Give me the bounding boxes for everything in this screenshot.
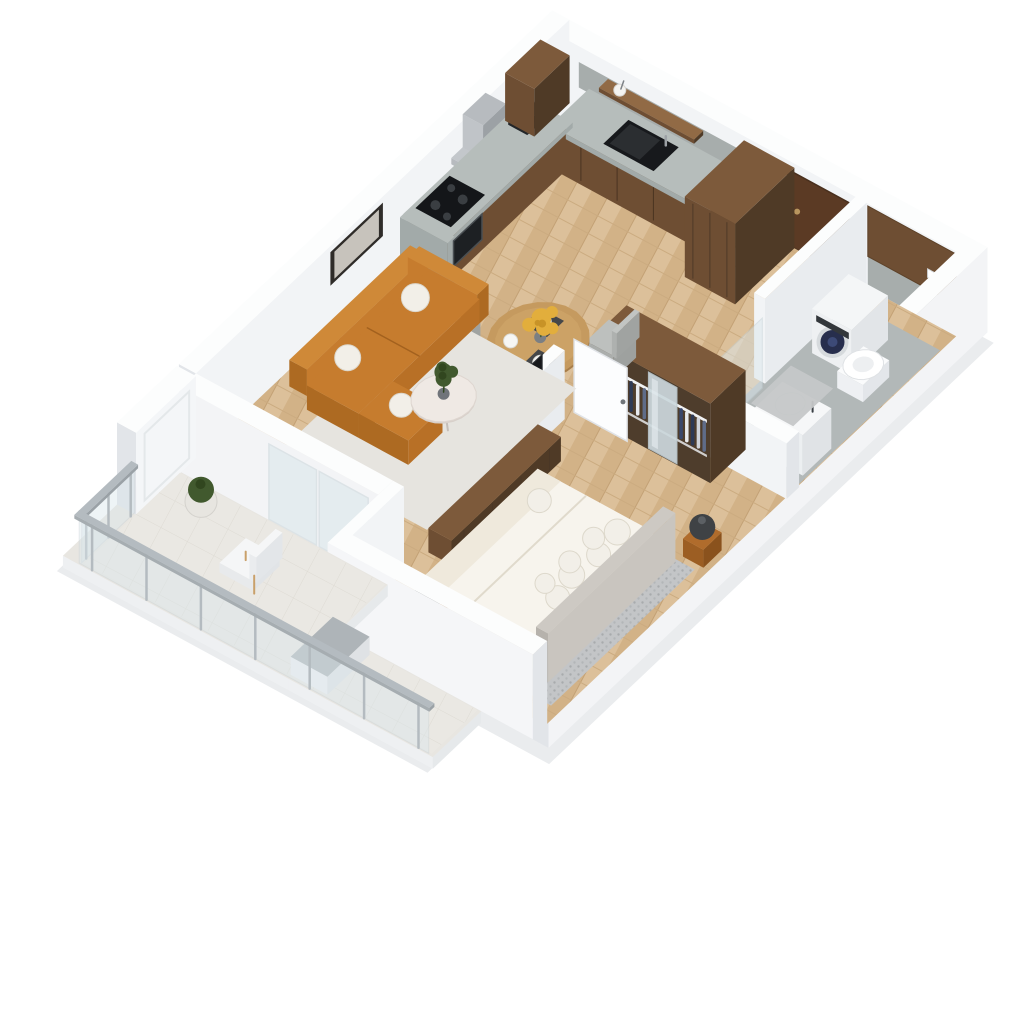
flower-bouquet-3	[522, 318, 536, 332]
plant-foliage-shade-1	[439, 372, 447, 380]
planter-plant-shade	[196, 479, 206, 489]
bed-pillows-4	[583, 527, 605, 549]
sofa-cushions-3	[389, 393, 413, 417]
bedroom-door-knob	[621, 399, 626, 404]
bed-pillows-8	[527, 489, 551, 513]
cooktop-burners-1	[447, 184, 455, 192]
bed-pillows-1	[604, 519, 630, 545]
plant-foliage-shade-2	[439, 363, 447, 371]
washing-machine-door-glass	[828, 337, 838, 347]
entrance-door-handle	[794, 209, 800, 215]
wardrobe-mirror-streak	[652, 378, 658, 449]
cooktop-burners-4	[443, 213, 451, 221]
bed-pillows-7	[535, 573, 555, 593]
floor-plan-canvas	[0, 0, 1024, 1024]
flower-bouquet-4	[546, 306, 558, 318]
cooktop-burners-2	[458, 195, 468, 205]
bedroom-se-wall-side	[533, 641, 547, 739]
dining-chair-far-back-front	[612, 331, 617, 359]
floor-plan-render	[0, 0, 1024, 1024]
plant-foliage-4	[446, 366, 458, 378]
sofa-cushions-2	[335, 345, 361, 371]
scene-root	[57, 10, 994, 772]
bed-pillows-5	[559, 551, 581, 573]
bathroom-curved-wall-side	[787, 432, 800, 500]
bedside-lamp-1-highlight	[698, 516, 706, 524]
flower-bouquet-5	[546, 322, 558, 334]
shelf-vase	[614, 84, 626, 96]
cooktop-burners-3	[430, 200, 440, 210]
flower-bouquet-shade-2	[535, 320, 541, 326]
dinner-plate-3	[504, 334, 518, 348]
sofa-cushions-1	[401, 284, 429, 312]
